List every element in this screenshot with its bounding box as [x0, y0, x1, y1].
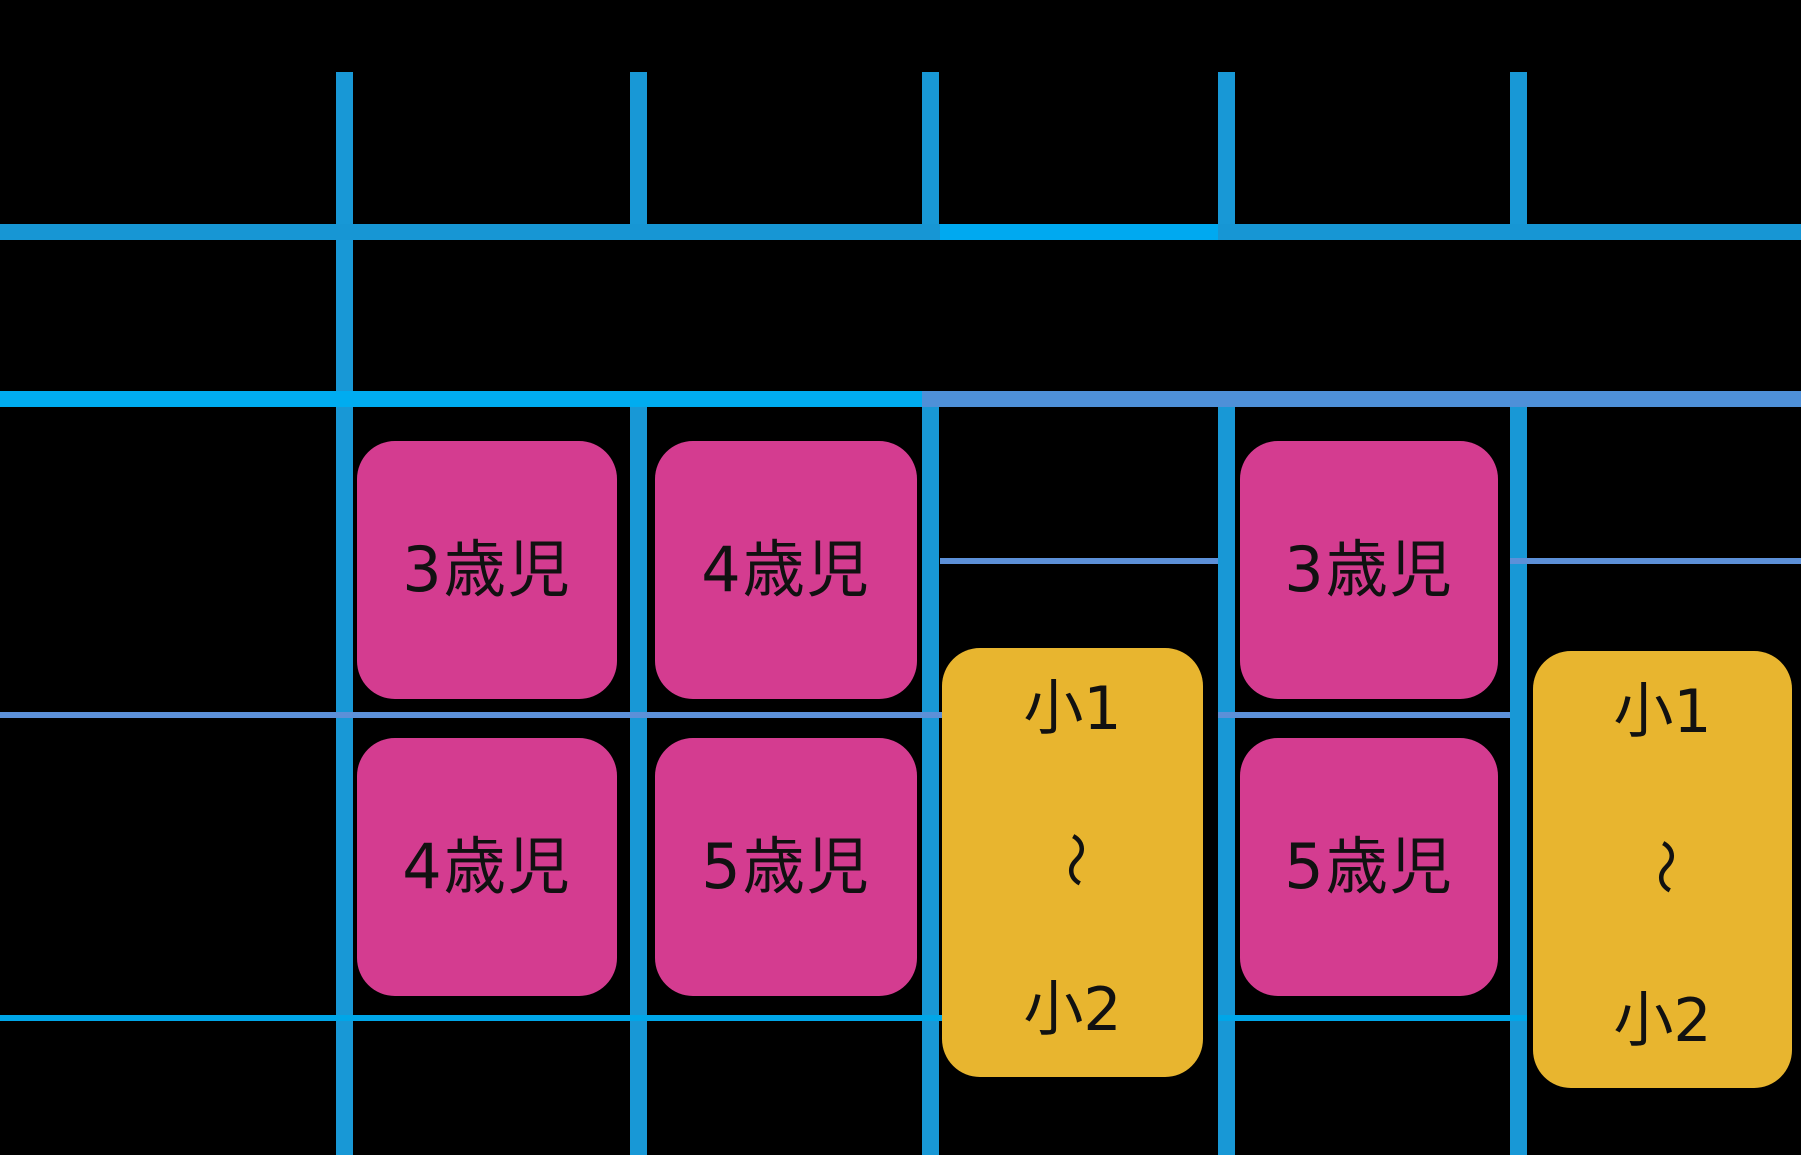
class-card-label-bottom: 小2 — [1613, 988, 1711, 1054]
grid-hline-2-right — [922, 391, 1801, 407]
grid-vline-5-bottom — [1510, 391, 1527, 1155]
grid-thinline-col6 — [1510, 558, 1801, 564]
grid-vline-3-bottom — [922, 391, 939, 1155]
grid-vline-4-bottom — [1218, 391, 1235, 1155]
grid-vline-3-top — [922, 72, 939, 240]
class-card-label: 3歳児 — [1284, 536, 1453, 604]
class-card-sho1-sho2-left: 小1 〜 小2 — [942, 648, 1203, 1077]
class-card-5yo-row2-right: 5歳児 — [1240, 738, 1498, 996]
grid-vline-5-top — [1510, 72, 1527, 240]
tilde-range-glyph: 〜 — [1042, 832, 1104, 888]
grid-hline-2-left — [0, 391, 922, 407]
schedule-grid: 3歳児 4歳児 3歳児 4歳児 5歳児 5歳児 小1 〜 小2 小1 〜 小2 — [0, 0, 1801, 1155]
class-card-label-top: 小1 — [1023, 676, 1121, 742]
class-card-4yo-row2: 4歳児 — [357, 738, 617, 996]
class-card-3yo-row1: 3歳児 — [357, 441, 617, 699]
grid-thinline-mid-left — [0, 712, 942, 718]
class-card-label: 4歳児 — [701, 536, 870, 604]
class-card-4yo-row1: 4歳児 — [655, 441, 917, 699]
grid-hline-1-right — [1218, 224, 1801, 240]
class-card-label: 4歳児 — [402, 833, 571, 901]
class-card-5yo-row2: 5歳児 — [655, 738, 917, 996]
class-card-label-bottom: 小2 — [1023, 977, 1121, 1043]
grid-vline-4-top — [1218, 72, 1235, 240]
tilde-range-glyph: 〜 — [1632, 839, 1694, 895]
class-card-label: 5歳児 — [701, 833, 870, 901]
grid-thinline-col4 — [940, 558, 1218, 564]
grid-vline-2-bottom — [630, 391, 647, 1155]
grid-vline-2-top — [630, 72, 647, 240]
class-card-label: 5歳児 — [1284, 833, 1453, 901]
grid-thinline-mid-right — [1218, 712, 1510, 718]
class-card-sho1-sho2-right: 小1 〜 小2 — [1533, 651, 1792, 1088]
class-card-label: 3歳児 — [402, 536, 571, 604]
grid-hline-1-left — [0, 224, 940, 240]
grid-thinline-bottom-left — [0, 1015, 942, 1021]
class-card-3yo-row1-right: 3歳児 — [1240, 441, 1498, 699]
class-card-label-top: 小1 — [1613, 679, 1711, 745]
grid-thinline-bottom-right — [1218, 1015, 1527, 1021]
grid-hline-1-middle — [940, 224, 1218, 240]
